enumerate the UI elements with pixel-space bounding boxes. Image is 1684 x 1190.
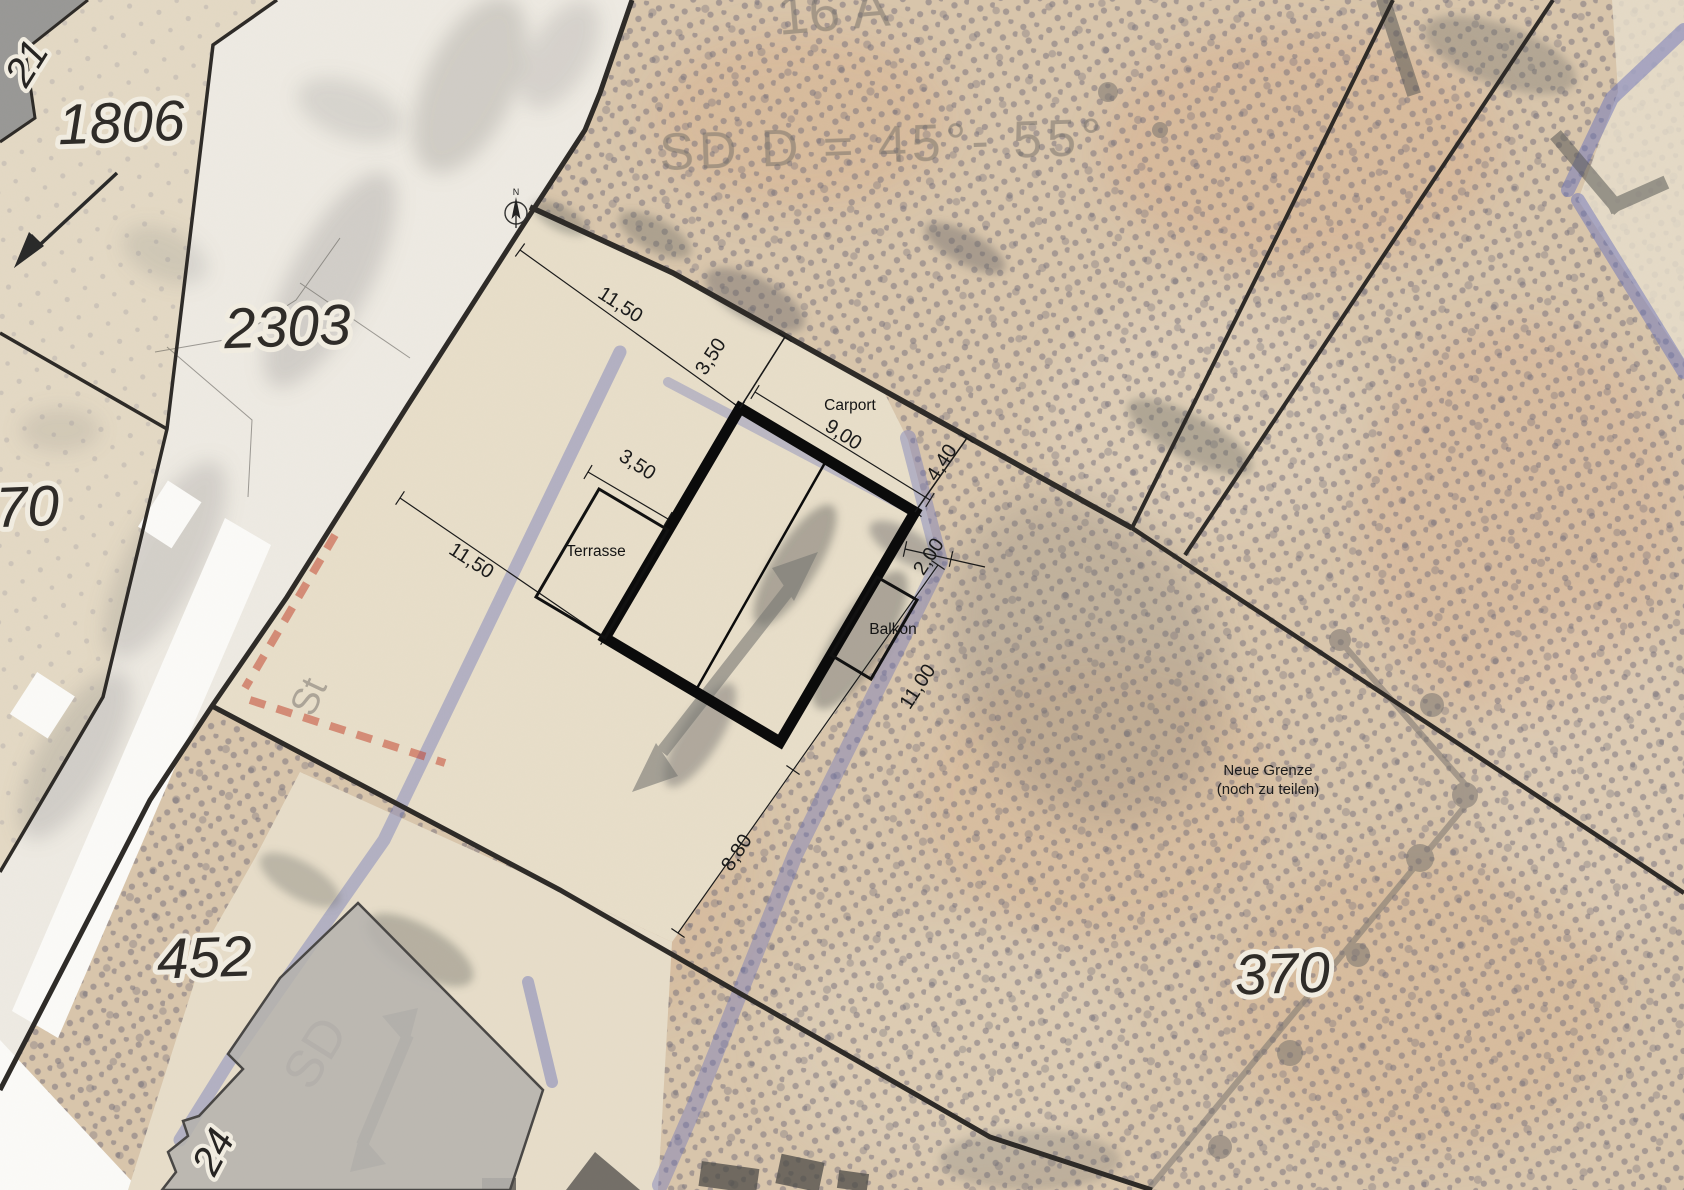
paper-grain-overlay	[0, 0, 1684, 1190]
site-plan-canvas: 16 A SD D = 45°- 55° SD St	[0, 0, 1684, 1190]
cadastral-site-plan: 16 A SD D = 45°- 55° SD St	[0, 0, 1684, 1190]
